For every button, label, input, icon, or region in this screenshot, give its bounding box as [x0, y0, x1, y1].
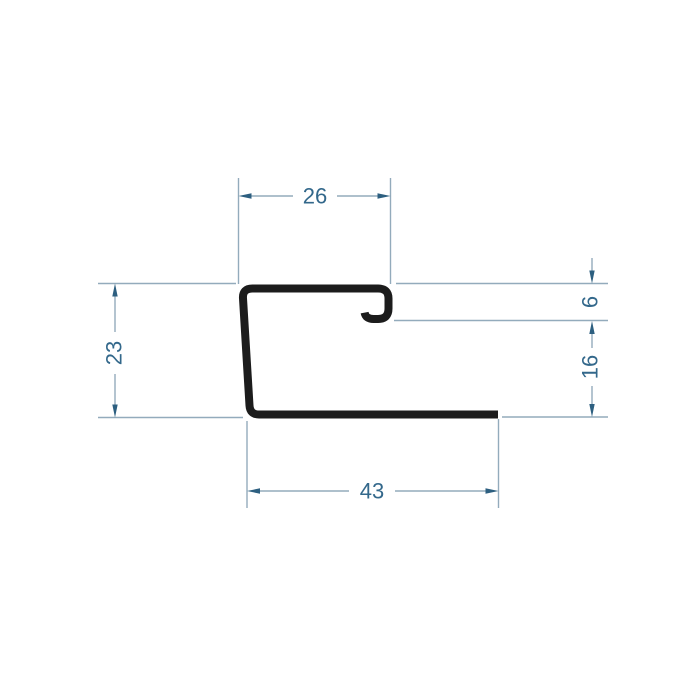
- dim-right-height-label: 16: [578, 355, 603, 379]
- arrow-up-icon: [589, 321, 594, 334]
- dim-bottom-width-label: 43: [360, 479, 384, 504]
- arrow-right-icon: [378, 193, 391, 198]
- arrow-left-icon: [247, 488, 260, 493]
- dimension-bottom-width: 43: [247, 419, 499, 508]
- profile-outline: [243, 289, 498, 415]
- dim-top-width-label: 26: [303, 184, 327, 209]
- arrow-right-icon: [486, 488, 499, 493]
- dimension-top-width: 26: [239, 178, 391, 284]
- arrow-down-icon: [112, 405, 117, 418]
- dim-hook-depth-label: 6: [578, 296, 603, 308]
- dim-left-height-label: 23: [102, 341, 127, 365]
- profile-drawing: 26 23 43: [0, 0, 700, 700]
- arrow-left-icon: [239, 193, 252, 198]
- dimension-right-height: 16: [578, 321, 603, 417]
- arrow-down-icon: [589, 271, 594, 284]
- arrow-up-icon: [112, 284, 117, 297]
- right-extension-lines: [394, 284, 608, 418]
- dimension-left-height: 23: [98, 284, 243, 418]
- drawing-canvas: 26 23 43: [0, 0, 700, 700]
- arrow-down-icon: [589, 404, 594, 417]
